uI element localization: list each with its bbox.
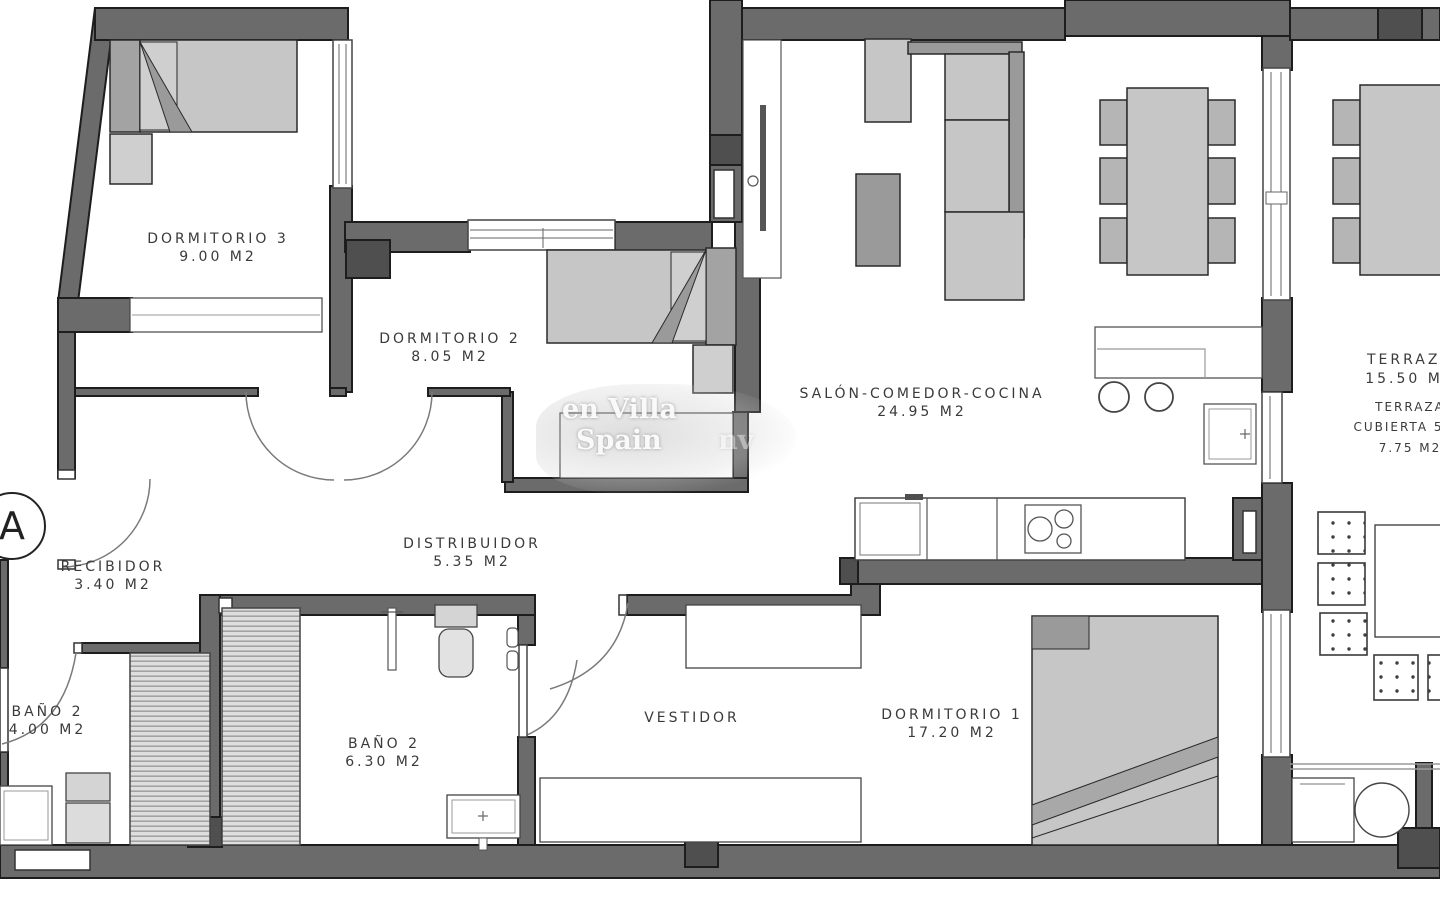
toilet-cistern-bath2 xyxy=(435,605,477,627)
wall-kitchen-dorm1 xyxy=(840,558,1262,584)
sofa-back-top xyxy=(908,42,1022,54)
radiator-bath2 xyxy=(388,608,396,670)
nightstand-dorm3 xyxy=(110,134,152,184)
wall-pier-salon-terraza xyxy=(1262,36,1292,70)
wall-door-strip-left xyxy=(75,388,258,396)
wall-step-dorm3 xyxy=(58,298,132,332)
wall-left-recibidor xyxy=(58,332,75,478)
toilet-bowl-bath-left xyxy=(66,803,110,843)
wall-top-salon-right xyxy=(1065,0,1290,36)
furniture-salon xyxy=(743,39,1262,560)
basin-bath-left xyxy=(0,786,52,845)
cooktop xyxy=(1025,505,1081,553)
pillar-central xyxy=(710,135,742,165)
room-area: 3.40 M2 xyxy=(0,577,238,595)
ottoman xyxy=(1320,613,1367,655)
room-area: 24.95 M2 xyxy=(742,404,1102,422)
hall-closet xyxy=(560,413,733,478)
room-label-recibidor: RECIBIDOR 3.40 M2 xyxy=(0,559,238,594)
tv-screen xyxy=(760,105,766,231)
wall-bath2-right-upper xyxy=(518,615,535,645)
terrace-table xyxy=(1360,85,1440,275)
bar-stool xyxy=(1099,382,1129,412)
tv-knob xyxy=(748,176,758,186)
vestidor-wardrobe-bottom xyxy=(540,778,861,842)
floor-plan-drawing xyxy=(0,0,1440,900)
bar-stool xyxy=(1145,383,1173,411)
room-area: 17.20 M2 xyxy=(802,725,1102,743)
room-label-dormitorio-3: DORMITORIO 3 9.00 M2 xyxy=(68,231,368,266)
wall-top-dorm2-right xyxy=(615,222,712,252)
coffee-table xyxy=(856,174,900,266)
room-area: 6.30 M2 xyxy=(234,754,534,772)
ottoman xyxy=(1374,655,1418,700)
niche-right-wall xyxy=(1243,511,1256,553)
wall-bottom xyxy=(0,845,1440,878)
breakfast-bar xyxy=(1095,327,1262,412)
shower-bath-left xyxy=(130,653,210,845)
room-name: DORMITORIO 2 xyxy=(300,331,600,349)
sofa-seat-3 xyxy=(945,212,1024,300)
door-leaf-bath2 xyxy=(519,645,527,737)
ottoman xyxy=(1318,512,1365,554)
room-name: DISTRIBUIDOR xyxy=(322,536,622,554)
dining-chair xyxy=(1208,218,1235,263)
room-label-terraza-area: 15.50 M2 xyxy=(1310,371,1440,388)
terrace-chair xyxy=(1333,158,1360,204)
wall-right-mid2 xyxy=(1262,483,1292,612)
sofa-seat-1 xyxy=(945,54,1009,120)
fixtures-bath-left xyxy=(0,653,210,845)
room-label-salon: SALÓN-COMEDOR-COCINA 24.95 M2 xyxy=(742,386,1102,421)
lounge-table xyxy=(1375,525,1440,637)
room-name: BAÑO 2 xyxy=(234,736,534,754)
vestidor-wardrobe-top xyxy=(686,605,861,668)
vanity-tap xyxy=(479,838,487,850)
fixtures-bath2 xyxy=(222,605,520,850)
wall-top-salon-left xyxy=(742,8,1065,40)
wall-door-strip-right xyxy=(428,388,510,396)
dining-chair xyxy=(1100,218,1127,263)
bed1-pillow xyxy=(1032,616,1089,649)
wall-right-lower xyxy=(1262,755,1292,847)
floor-plan: DORMITORIO 3 9.00 M2 DORMITORIO 2 8.05 M… xyxy=(0,0,1440,900)
window-dorm1 xyxy=(1263,610,1290,757)
dining-set xyxy=(1100,88,1235,275)
terrace-chair xyxy=(1333,100,1360,145)
terrace-dining-set xyxy=(1333,85,1440,275)
towel-rail xyxy=(507,651,518,670)
nightstand-dorm2 xyxy=(693,345,733,393)
wall-top-bath-left xyxy=(82,643,200,653)
utility-basin xyxy=(1355,783,1409,837)
furniture-vestidor xyxy=(540,413,861,842)
furniture-dorm2 xyxy=(547,248,736,393)
furniture-terraza xyxy=(1290,85,1440,842)
room-label-vestidor: VESTIDOR xyxy=(542,710,842,728)
wall-terraza-corner xyxy=(1416,763,1432,829)
room-area: 9.00 M2 xyxy=(68,249,368,267)
pillar-terraza-top xyxy=(1378,8,1422,40)
wall-door-jamb-center xyxy=(330,388,346,396)
room-name: DORMITORIO 3 xyxy=(68,231,368,249)
room-area: 8.05 M2 xyxy=(300,349,600,367)
entrance-jamb-top xyxy=(58,470,75,479)
sliding-door-salon-terraza xyxy=(1263,68,1290,300)
room-area: 5.35 M2 xyxy=(322,554,622,572)
kitchen-counter xyxy=(855,494,1185,560)
wall-top-dorm3 xyxy=(95,8,348,40)
room-label-dormitorio-2: DORMITORIO 2 8.05 M2 xyxy=(300,331,600,366)
door-arc-dorm3 xyxy=(246,392,334,480)
dining-chair xyxy=(1208,158,1235,204)
kitchen-sink xyxy=(1204,404,1256,464)
window-kitchen xyxy=(1262,392,1282,483)
room-label-distribuidor: DISTRIBUIDOR 5.35 M2 xyxy=(322,536,622,571)
door-arc-entrance xyxy=(62,479,150,567)
room-label-dormitorio-1: DORMITORIO 1 17.20 M2 xyxy=(802,707,1102,742)
wall-dorm2-hall xyxy=(502,392,513,482)
bed2-headboard xyxy=(706,248,736,345)
dining-chair xyxy=(1208,100,1235,145)
window-dorm2 xyxy=(468,220,615,250)
room-name: BAÑO 2 xyxy=(0,704,150,722)
toilet-bowl-bath2 xyxy=(439,629,473,677)
room-label-terraza-cubierta-name: TERRAZA xyxy=(1310,399,1440,416)
sofa-chaise xyxy=(865,39,911,122)
jamb-bath-left xyxy=(74,643,82,653)
terrace-chair xyxy=(1333,218,1360,263)
door-arc-vestidor xyxy=(550,603,628,689)
utility-box xyxy=(1292,778,1354,842)
ottoman xyxy=(1428,655,1440,700)
room-label-bano-2: BAÑO 2 6.30 M2 xyxy=(234,736,534,771)
bed3-headboard xyxy=(110,40,140,132)
dining-chair xyxy=(1100,158,1127,204)
furniture-dorm3 xyxy=(110,40,322,332)
towel-rail xyxy=(507,628,518,647)
pillar-bottom-right xyxy=(1398,828,1440,868)
room-label-terraza-name: TERRAZA xyxy=(1310,352,1440,369)
tv-unit xyxy=(743,40,781,278)
niche-central-wall xyxy=(714,170,734,218)
room-label-terraza-cubierta-area: 7.75 M2 xyxy=(1310,440,1440,457)
room-name: DORMITORIO 1 xyxy=(802,707,1102,725)
terrace-utility-corner xyxy=(1292,778,1409,842)
toilet-cistern-bath-left xyxy=(66,773,110,801)
vanity-bath2 xyxy=(447,795,520,850)
wall-right-mid1 xyxy=(1262,298,1292,392)
room-name: SALÓN-COMEDOR-COCINA xyxy=(742,386,1102,404)
sofa-back-right xyxy=(1009,52,1024,238)
sofa-seat-2 xyxy=(945,120,1009,212)
room-name: RECIBIDOR xyxy=(0,559,238,577)
room-name: VESTIDOR xyxy=(542,710,842,728)
wall-hall-horizontal xyxy=(505,478,748,492)
room-label-bano-left: BAÑO 2 4.00 M2 xyxy=(0,704,150,739)
pillar-kitchen-left xyxy=(840,558,858,584)
appliance-handle xyxy=(905,494,923,500)
ottoman xyxy=(1318,563,1365,605)
room-label-terraza-cubierta-detail: CUBIERTA 50% xyxy=(1310,419,1440,436)
dining-chair xyxy=(1100,100,1127,145)
room-area: 4.00 M2 xyxy=(0,722,150,740)
shower-bath2 xyxy=(222,608,300,845)
door-arc-dorm2 xyxy=(344,392,432,480)
window-dorm3 xyxy=(333,40,352,188)
dining-table xyxy=(1127,88,1208,275)
terrace-lounge-set xyxy=(1318,512,1440,700)
inset-bottom-wall xyxy=(15,850,90,870)
